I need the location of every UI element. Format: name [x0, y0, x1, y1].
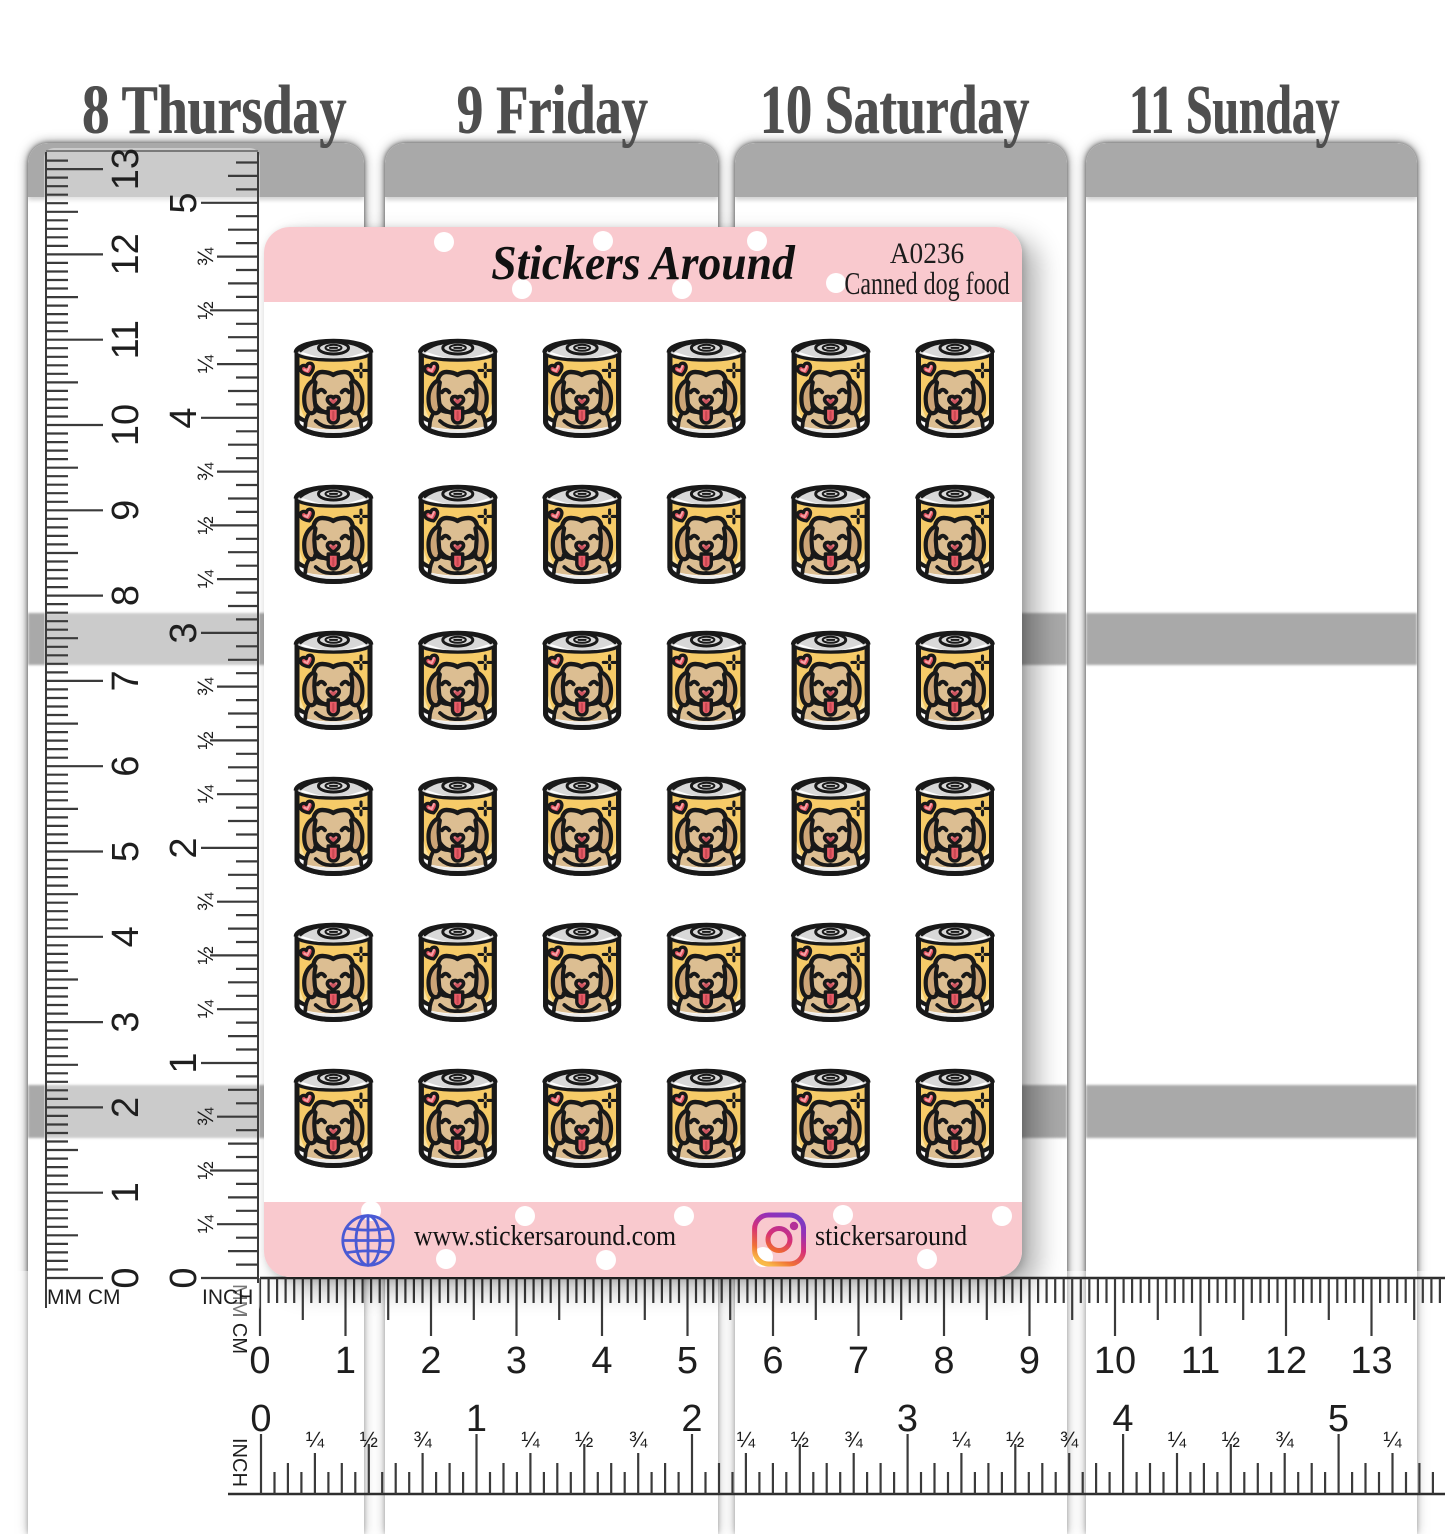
svg-text:½: ½ [193, 301, 218, 319]
svg-text:8: 8 [105, 585, 147, 606]
svg-text:8: 8 [933, 1340, 954, 1382]
svg-text:¾: ¾ [193, 247, 218, 266]
svg-text:6: 6 [105, 756, 147, 777]
svg-text:½: ½ [360, 1427, 378, 1452]
svg-text:¼: ¼ [737, 1427, 756, 1452]
svg-text:5: 5 [1328, 1398, 1349, 1440]
svg-text:2: 2 [105, 1097, 147, 1118]
svg-text:¾: ¾ [193, 462, 218, 481]
svg-text:MM CM: MM CM [47, 1286, 120, 1309]
svg-text:INCH: INCH [228, 1438, 250, 1487]
svg-text:¾: ¾ [1060, 1427, 1079, 1452]
svg-text:7: 7 [848, 1340, 869, 1382]
svg-text:4: 4 [163, 407, 205, 428]
svg-text:9: 9 [1019, 1340, 1040, 1382]
svg-text:5: 5 [105, 841, 147, 862]
svg-text:¾: ¾ [413, 1427, 432, 1452]
svg-text:11: 11 [1181, 1340, 1220, 1382]
svg-text:3: 3 [163, 622, 205, 643]
svg-text:¼: ¼ [193, 1214, 218, 1233]
svg-text:¼: ¼ [193, 569, 218, 588]
svg-text:0: 0 [250, 1398, 271, 1440]
svg-text:7: 7 [105, 670, 147, 691]
svg-text:¾: ¾ [1275, 1427, 1294, 1452]
svg-text:¾: ¾ [629, 1427, 648, 1452]
svg-text:½: ½ [1006, 1427, 1024, 1452]
svg-text:1: 1 [466, 1398, 487, 1440]
svg-text:3: 3 [506, 1340, 527, 1382]
svg-text:1: 1 [105, 1182, 147, 1203]
svg-text:½: ½ [193, 1161, 218, 1179]
svg-text:¼: ¼ [193, 784, 218, 803]
svg-text:1: 1 [335, 1340, 356, 1382]
svg-text:¾: ¾ [193, 677, 218, 696]
svg-text:10: 10 [105, 404, 147, 446]
svg-text:5: 5 [163, 192, 205, 213]
svg-text:0: 0 [163, 1267, 205, 1288]
svg-text:2: 2 [681, 1398, 702, 1440]
svg-text:¼: ¼ [306, 1427, 325, 1452]
svg-text:2: 2 [163, 837, 205, 858]
svg-text:5: 5 [677, 1340, 698, 1382]
svg-text:½: ½ [791, 1427, 809, 1452]
svg-text:12: 12 [1265, 1340, 1307, 1382]
svg-text:11: 11 [105, 320, 147, 359]
svg-text:¾: ¾ [844, 1427, 863, 1452]
svg-text:½: ½ [193, 946, 218, 964]
svg-text:¾: ¾ [193, 892, 218, 911]
svg-text:3: 3 [105, 1012, 147, 1033]
svg-text:9: 9 [105, 500, 147, 521]
svg-text:4: 4 [1112, 1398, 1133, 1440]
svg-text:2: 2 [420, 1340, 441, 1382]
svg-text:½: ½ [193, 516, 218, 534]
svg-text:1: 1 [163, 1052, 205, 1073]
svg-text:4: 4 [591, 1340, 612, 1382]
svg-text:½: ½ [575, 1427, 593, 1452]
svg-text:¼: ¼ [193, 999, 218, 1018]
svg-text:12: 12 [105, 233, 147, 275]
svg-text:¼: ¼ [1383, 1427, 1402, 1452]
svg-text:INCH: INCH [202, 1286, 253, 1309]
svg-text:4: 4 [105, 926, 147, 947]
svg-text:¼: ¼ [952, 1427, 971, 1452]
svg-text:½: ½ [1222, 1427, 1240, 1452]
svg-text:6: 6 [762, 1340, 783, 1382]
svg-text:¼: ¼ [1168, 1427, 1187, 1452]
svg-text:13: 13 [1350, 1340, 1392, 1382]
svg-text:¼: ¼ [521, 1427, 540, 1452]
svg-text:¾: ¾ [193, 1107, 218, 1126]
svg-text:13: 13 [105, 148, 147, 190]
svg-text:10: 10 [1094, 1340, 1136, 1382]
svg-text:3: 3 [897, 1398, 918, 1440]
svg-text:0: 0 [249, 1340, 270, 1382]
svg-text:¼: ¼ [193, 354, 218, 373]
svg-text:½: ½ [193, 731, 218, 749]
